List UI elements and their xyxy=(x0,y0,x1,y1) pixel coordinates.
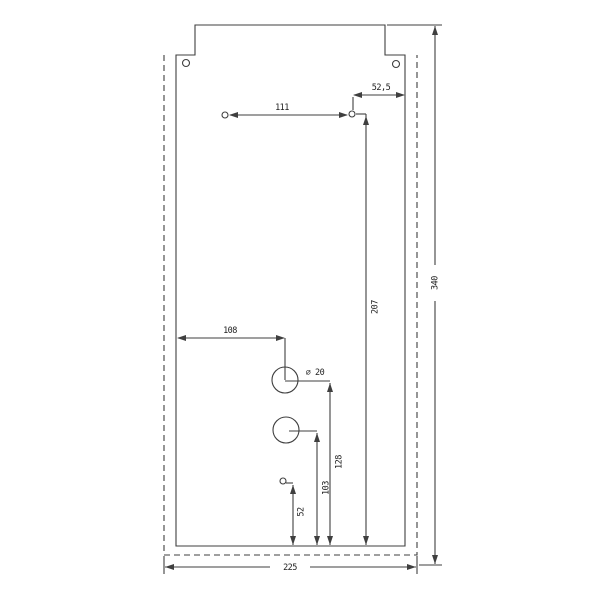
dim-overall-width: 225 xyxy=(164,556,417,574)
dim-offset-right-top: 52,5 xyxy=(353,83,405,110)
plate-outline xyxy=(176,25,405,546)
dim-circle-from-left: 108 xyxy=(177,326,285,380)
hole-mark-top-left xyxy=(222,112,228,118)
dim-top-hole-from-bottom: 207 xyxy=(356,114,381,545)
dim-label-340: 340 xyxy=(431,276,441,290)
dim-label-225: 225 xyxy=(283,563,297,573)
dim-label-207: 207 xyxy=(371,300,381,314)
dim-label-103: 103 xyxy=(322,481,332,495)
dim-lower-circle-from-bottom: 103 xyxy=(289,431,332,545)
dim-label-111: 111 xyxy=(275,103,289,113)
drawing-canvas: 52,5 111 340 207 xyxy=(0,0,600,600)
technical-drawing: 52,5 111 340 207 xyxy=(0,0,600,600)
dim-label-108: 108 xyxy=(223,326,237,336)
dim-upper-circle-from-bottom: 128 xyxy=(285,381,345,545)
hole-mark-bottom xyxy=(280,478,286,484)
dim-label-52-5: 52,5 xyxy=(372,83,391,93)
hole-mark-top-right xyxy=(349,111,355,117)
dim-hole-spacing-top: 111 xyxy=(229,103,348,118)
dim-label-128: 128 xyxy=(335,455,345,469)
dim-circle-diameter: ⌀ 20 xyxy=(306,368,325,378)
circle-hole-lower xyxy=(273,417,299,443)
dim-small-hole-from-bottom: 52 xyxy=(286,483,307,545)
dim-overall-height: 340 xyxy=(387,25,442,565)
corner-hole-right xyxy=(393,61,400,68)
dim-label-dia20: ⌀ 20 xyxy=(306,368,325,378)
dim-label-52: 52 xyxy=(297,507,307,517)
corner-hole-left xyxy=(183,60,190,67)
